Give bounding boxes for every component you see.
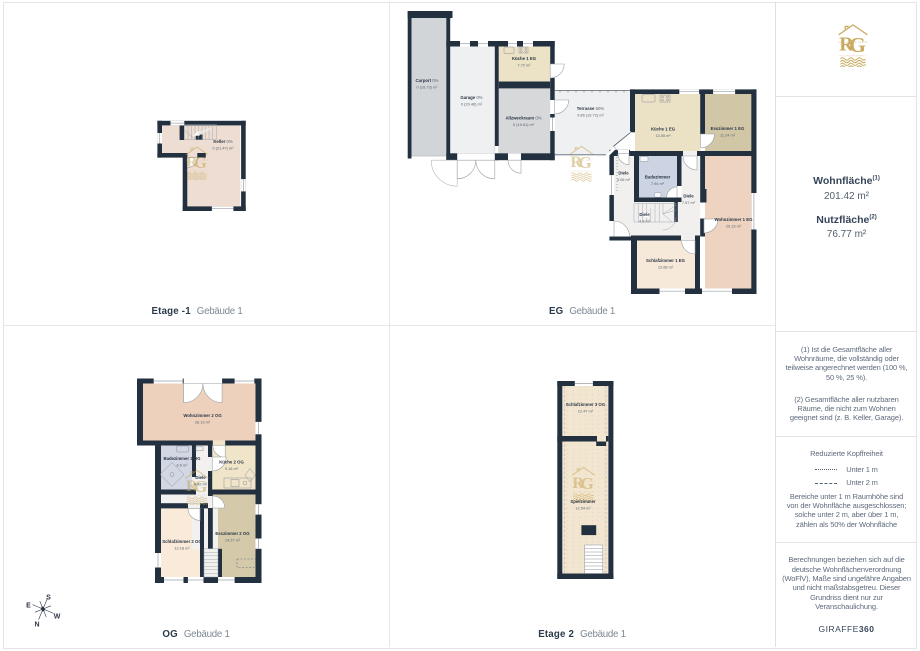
svg-text:Diele: Diele <box>195 475 206 480</box>
svg-text:Carport 0%: Carport 0% <box>416 78 439 83</box>
svg-text:Wohnzimmer 1 EG: Wohnzimmer 1 EG <box>715 217 754 222</box>
svg-text:11.24 m²: 11.24 m² <box>720 132 736 137</box>
svg-text:12.47 m²: 12.47 m² <box>578 408 594 413</box>
svg-text:Schlafzimmer 2 OG: Schlafzimmer 2 OG <box>162 539 202 544</box>
svg-text:7.94 m²: 7.94 m² <box>651 181 665 186</box>
svg-text:0 (21.47) m²: 0 (21.47) m² <box>212 145 234 150</box>
svg-text:Diele: Diele <box>618 171 629 176</box>
svg-text:E: E <box>26 603 31 610</box>
svg-text:13.55 m²: 13.55 m² <box>655 133 671 138</box>
svg-text:Allzweckraum 0%: Allzweckraum 0% <box>505 116 541 121</box>
svg-text:Schlafzimmer 3 OG: Schlafzimmer 3 OG <box>566 402 606 407</box>
svg-text:7.72 m²: 7.72 m² <box>517 62 531 67</box>
svg-text:Keller 0%: Keller 0% <box>213 139 233 144</box>
svg-text:Diele: Diele <box>639 212 650 217</box>
svg-text:29.13 m²: 29.13 m² <box>726 223 742 228</box>
svg-text:0 (15.61) m²: 0 (15.61) m² <box>513 122 535 127</box>
svg-text:Badezimmer: Badezimmer <box>645 175 671 180</box>
svg-text:Diele: Diele <box>683 194 694 199</box>
svg-text:Spielzimmer: Spielzimmer <box>570 499 596 504</box>
svg-text:12.54 m²: 12.54 m² <box>575 505 591 510</box>
svg-text:Küche 1 EG: Küche 1 EG <box>512 56 537 61</box>
svg-text:28.13 m²: 28.13 m² <box>195 419 211 424</box>
svg-text:Küche 2 OG: Küche 2 OG <box>219 460 244 465</box>
svg-text:0 (18.73) m²: 0 (18.73) m² <box>416 84 438 89</box>
svg-text:Esszimmer 1 EG: Esszimmer 1 EG <box>711 126 745 131</box>
svg-text:4.42 m²: 4.42 m² <box>194 481 208 486</box>
svg-text:3.06 m²: 3.06 m² <box>617 177 631 182</box>
svg-text:Wohnzimmer 2 OG: Wohnzimmer 2 OG <box>183 413 222 418</box>
svg-text:S: S <box>46 595 51 602</box>
svg-text:9.86 (19.72) m²: 9.86 (19.72) m² <box>577 112 604 117</box>
svg-text:Garage 0%: Garage 0% <box>460 95 482 100</box>
svg-text:Terrasse 50%: Terrasse 50% <box>577 106 605 111</box>
svg-text:12.68 m²: 12.68 m² <box>658 264 674 269</box>
svg-text:Badezimmer 2 OG: Badezimmer 2 OG <box>163 456 201 461</box>
svg-text:N: N <box>34 622 39 629</box>
svg-text:0 (20.46) m²: 0 (20.46) m² <box>461 101 483 106</box>
svg-text:12.18 m²: 12.18 m² <box>174 545 190 550</box>
svg-text:9.16 m²: 9.16 m² <box>225 466 239 471</box>
svg-text:4.3 m²: 4.3 m² <box>639 218 651 223</box>
svg-text:Schlafzimmer 1 EG: Schlafzimmer 1 EG <box>646 258 686 263</box>
svg-text:W: W <box>54 614 61 621</box>
svg-text:14.27 m²: 14.27 m² <box>225 537 241 542</box>
svg-text:Esszimmer 2 OG: Esszimmer 2 OG <box>215 531 250 536</box>
svg-text:Küche 1 EG: Küche 1 EG <box>651 127 676 132</box>
svg-text:7.57 m²: 7.57 m² <box>682 200 696 205</box>
svg-text:6.6 m²: 6.6 m² <box>176 462 188 467</box>
